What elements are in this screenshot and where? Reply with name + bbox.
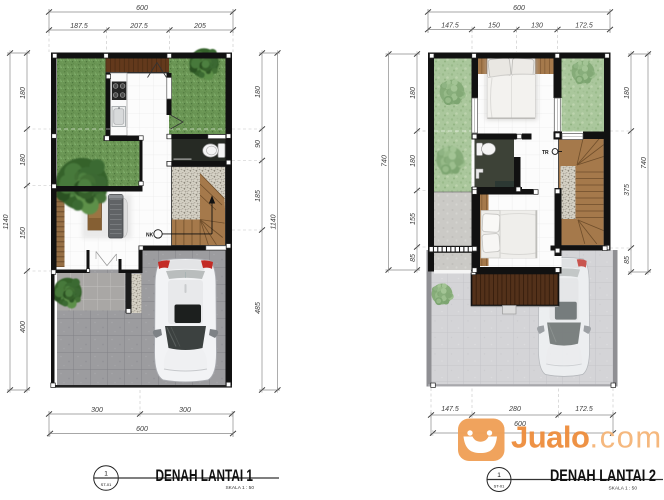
- svg-text:600: 600: [513, 5, 525, 12]
- svg-text:ST-01: ST-01: [101, 482, 112, 487]
- svg-text:180: 180: [410, 87, 417, 99]
- svg-text:85: 85: [624, 256, 631, 264]
- svg-text:600: 600: [136, 5, 148, 12]
- svg-text:485: 485: [255, 302, 262, 314]
- svg-text:130: 130: [531, 23, 543, 30]
- svg-text:150: 150: [488, 23, 500, 30]
- svg-text:180: 180: [20, 87, 27, 99]
- svg-text:1: 1: [497, 472, 501, 479]
- svg-text:90: 90: [255, 140, 262, 148]
- svg-text:187.5: 187.5: [70, 23, 88, 30]
- svg-text:150: 150: [20, 227, 27, 239]
- svg-text:300: 300: [91, 407, 103, 414]
- svg-text:180: 180: [255, 86, 262, 98]
- svg-text:NK: NK: [146, 232, 154, 238]
- svg-text:300: 300: [179, 407, 191, 414]
- svg-text:400: 400: [20, 321, 27, 333]
- svg-text:SKALA 1 : 50: SKALA 1 : 50: [225, 485, 254, 491]
- svg-text:172.5: 172.5: [575, 406, 593, 413]
- svg-text:180: 180: [20, 154, 27, 166]
- svg-text:147.5: 147.5: [441, 23, 459, 30]
- svg-text:600: 600: [136, 426, 148, 433]
- svg-text:740: 740: [382, 155, 389, 167]
- svg-text:180: 180: [624, 87, 631, 99]
- svg-text:1140: 1140: [271, 214, 278, 229]
- svg-text:147.5: 147.5: [441, 406, 459, 413]
- svg-text:155: 155: [410, 213, 417, 225]
- svg-text:375: 375: [624, 184, 631, 196]
- svg-text:740: 740: [641, 157, 648, 169]
- svg-text:280: 280: [508, 406, 521, 413]
- svg-text:1: 1: [104, 471, 108, 478]
- svg-text:180: 180: [410, 155, 417, 167]
- svg-text:SKALA 1 : 50: SKALA 1 : 50: [608, 486, 637, 492]
- svg-text:DENAH LANTAI 1: DENAH LANTAI 1: [156, 467, 254, 485]
- svg-text:DENAH LANTAI 2: DENAH LANTAI 2: [550, 467, 656, 485]
- svg-text:172.5: 172.5: [575, 23, 593, 30]
- svg-text:185: 185: [255, 190, 262, 202]
- svg-text:1140: 1140: [3, 214, 10, 229]
- svg-text:TR: TR: [542, 150, 549, 156]
- svg-text:85: 85: [410, 254, 417, 262]
- svg-text:Jualo.com: Jualo.com: [511, 420, 663, 455]
- svg-text:207.5: 207.5: [129, 23, 148, 30]
- svg-text:205: 205: [193, 23, 206, 30]
- svg-text:ST-01: ST-01: [494, 484, 505, 489]
